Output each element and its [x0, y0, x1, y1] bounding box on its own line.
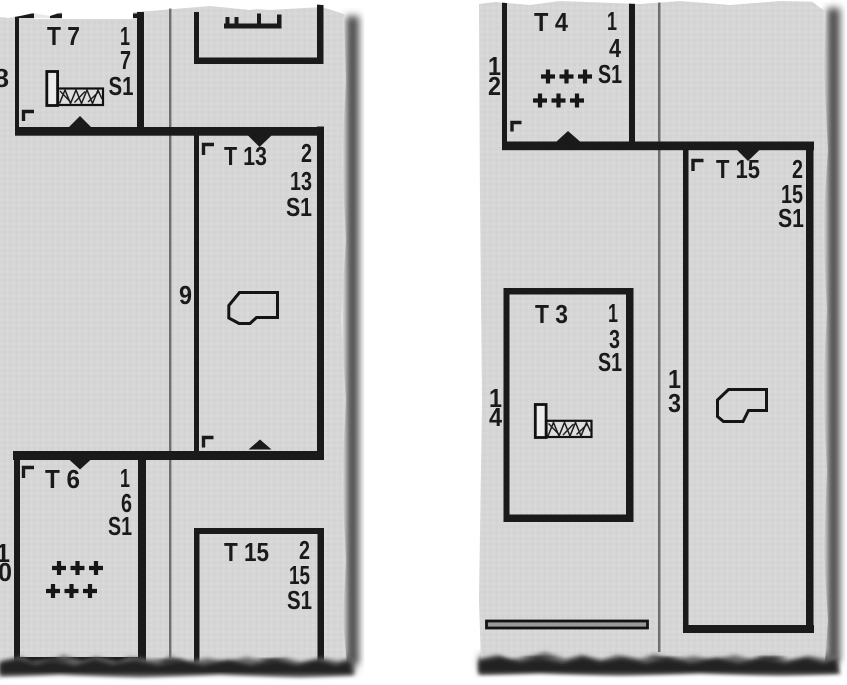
svg-text:S1: S1 [109, 71, 134, 101]
svg-text:S1: S1 [778, 203, 804, 233]
svg-text:T 6: T 6 [45, 464, 80, 494]
svg-text:S1: S1 [598, 347, 622, 377]
svg-text:T 3: T 3 [535, 299, 568, 329]
svg-text:S1: S1 [108, 511, 132, 541]
svg-text:S1: S1 [598, 59, 622, 89]
svg-text:8: 8 [0, 63, 9, 93]
svg-text:4: 4 [489, 402, 502, 432]
svg-text:2: 2 [488, 71, 501, 101]
svg-text:T 13: T 13 [224, 141, 267, 171]
svg-text:T 4: T 4 [534, 7, 568, 37]
svg-text:T 15: T 15 [716, 154, 760, 184]
svg-text:2: 2 [301, 138, 312, 168]
svg-text:3: 3 [668, 388, 681, 418]
svg-text:9: 9 [179, 280, 192, 310]
svg-text:T 7: T 7 [47, 21, 80, 51]
svg-text:S1: S1 [286, 192, 312, 222]
svg-text:T 15: T 15 [224, 537, 269, 567]
svg-text:S1: S1 [287, 585, 312, 615]
svg-text:0: 0 [0, 557, 12, 587]
svg-text:1: 1 [607, 6, 617, 36]
